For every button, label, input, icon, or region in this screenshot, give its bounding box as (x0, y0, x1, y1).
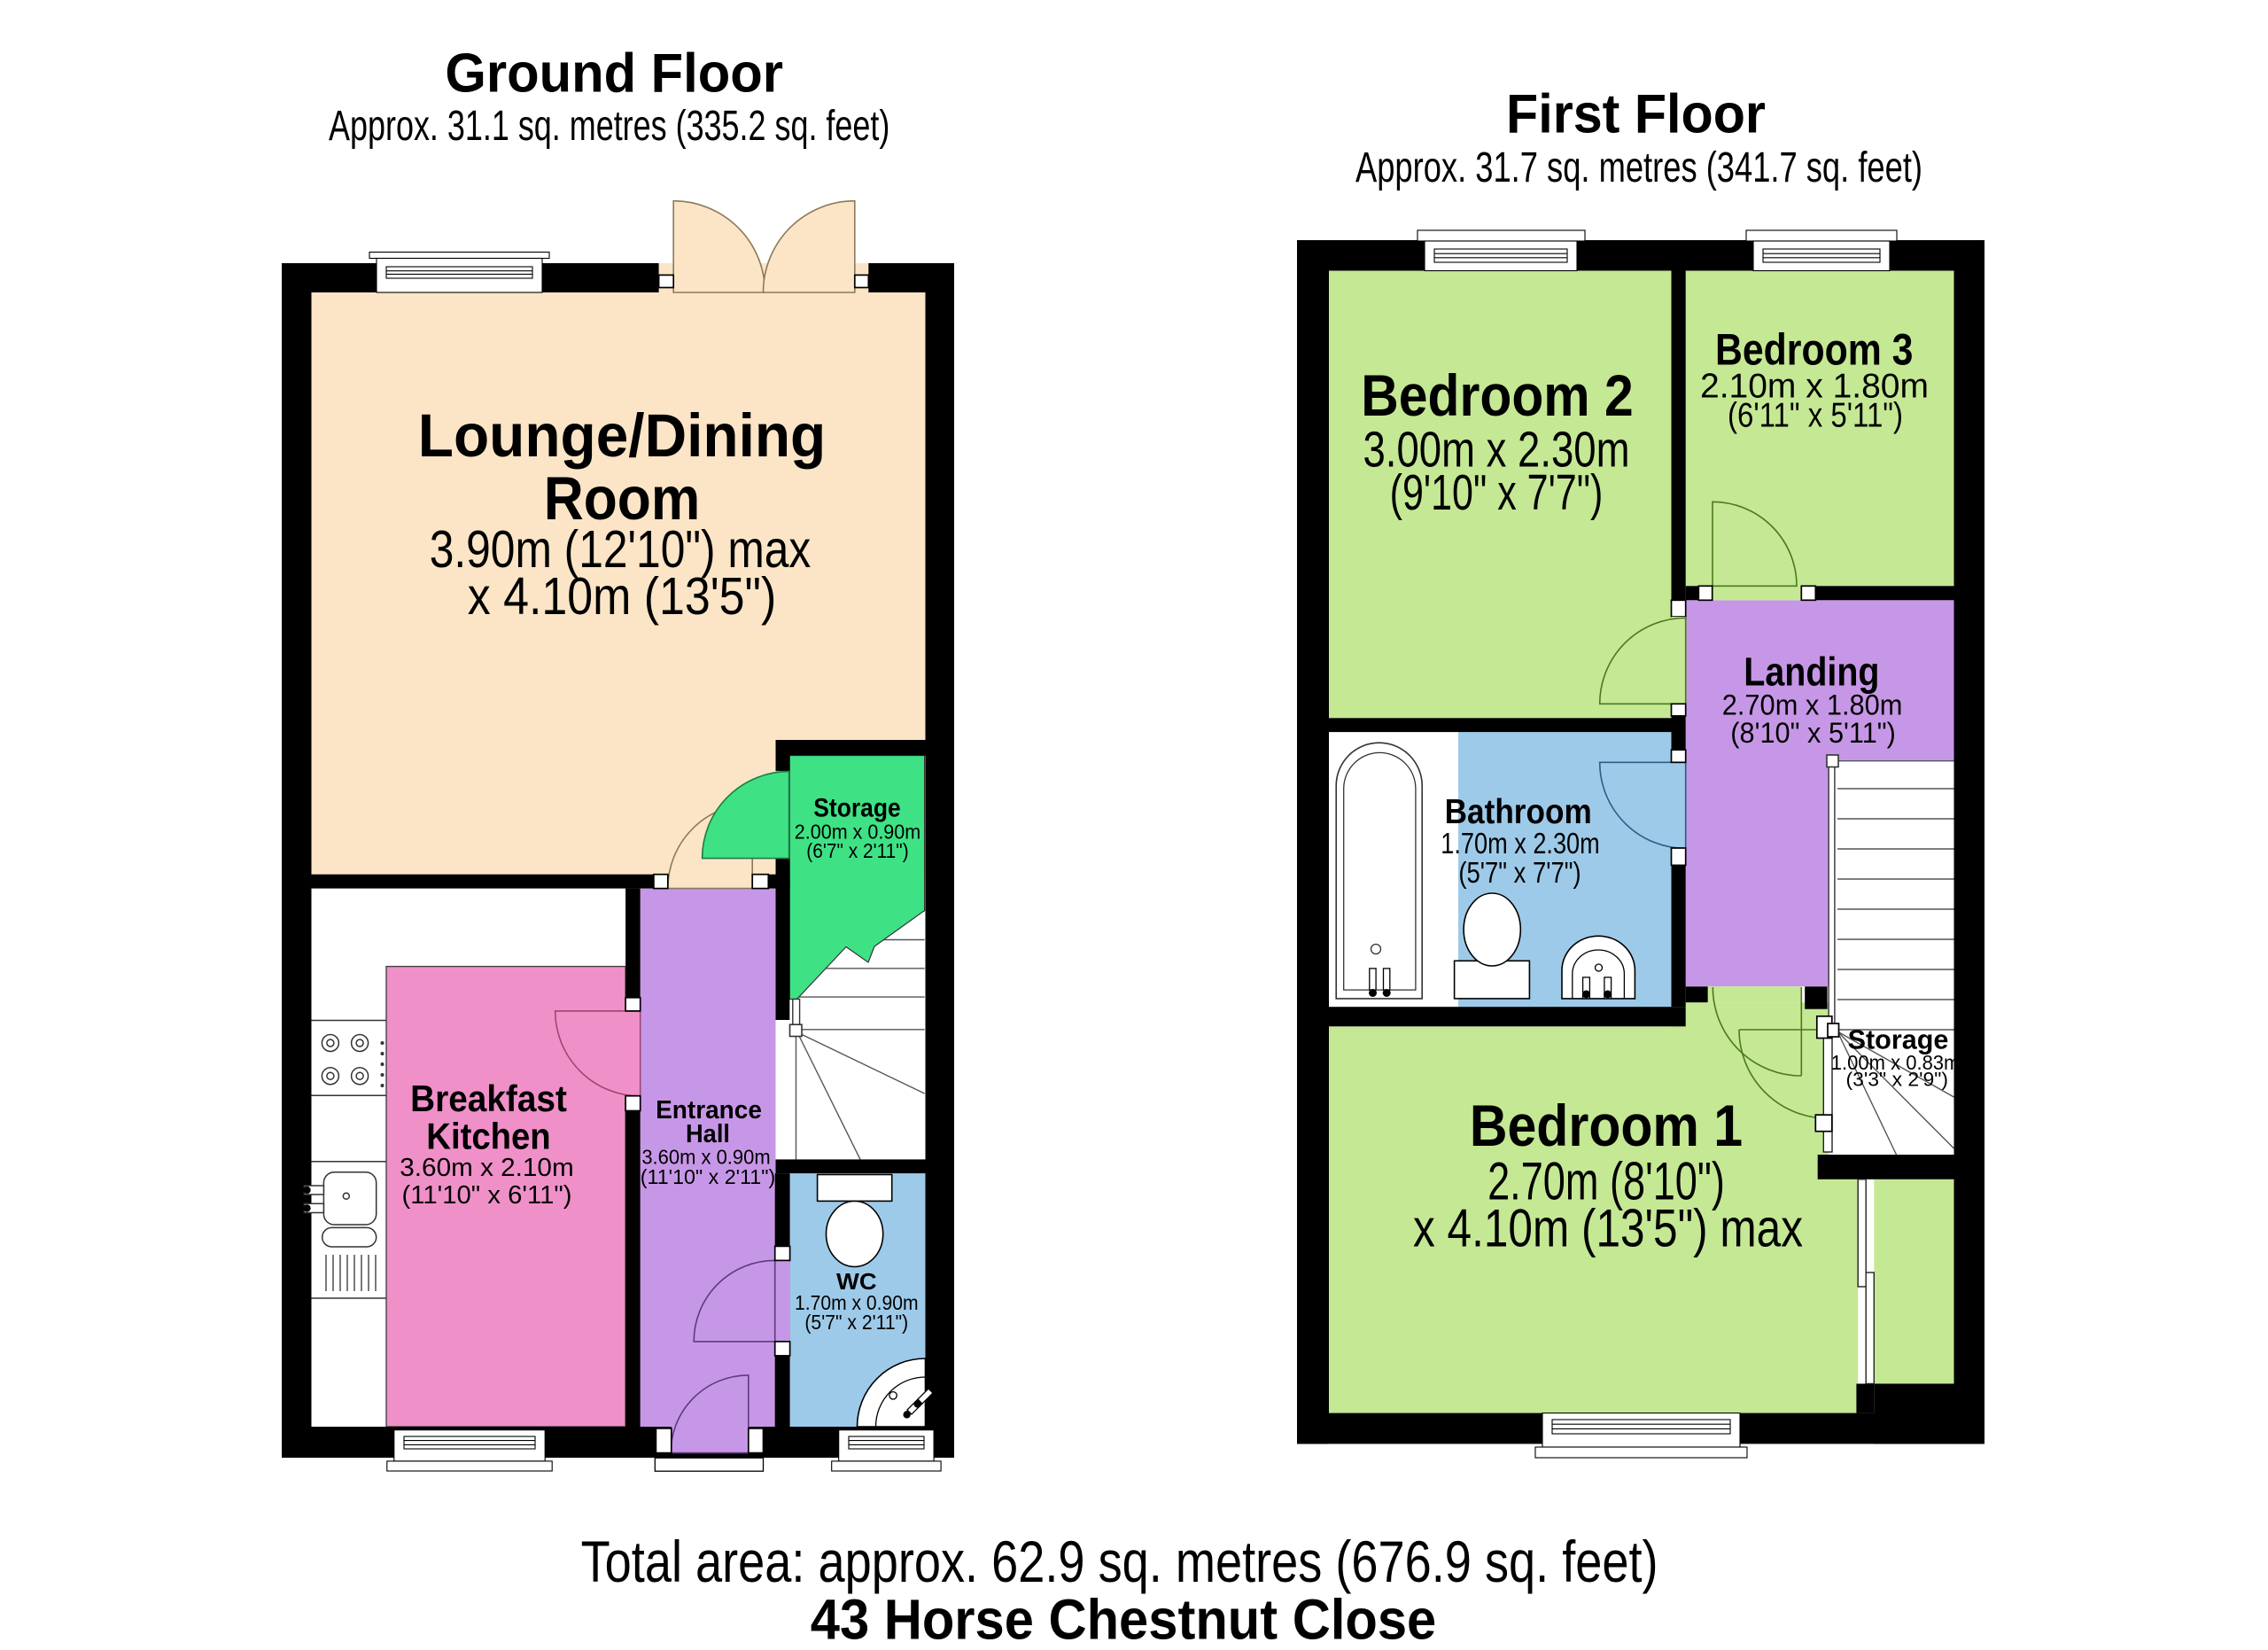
svg-text:1.70m x 2.30m: 1.70m x 2.30m (1441, 827, 1600, 860)
svg-text:(9'10" x 7'7"): (9'10" x 7'7") (1390, 464, 1604, 521)
svg-text:Kitchen: Kitchen (426, 1115, 550, 1156)
svg-text:Breakfast: Breakfast (410, 1078, 567, 1119)
svg-text:Bedroom 2: Bedroom 2 (1361, 362, 1633, 428)
svg-text:Approx. 31.7 sq. metres (341.7: Approx. 31.7 sq. metres (341.7 sq. feet) (1355, 144, 1922, 191)
svg-text:Lounge/Dining: Lounge/Dining (418, 401, 827, 470)
svg-text:x 4.10m (13'5") max: x 4.10m (13'5") max (1413, 1199, 1803, 1258)
svg-text:43 Horse Chestnut Close: 43 Horse Chestnut Close (811, 1588, 1437, 1650)
svg-text:Total area: approx. 62.9 sq. m: Total area: approx. 62.9 sq. metres (676… (581, 1529, 1658, 1594)
svg-text:(5'7" x 7'7"): (5'7" x 7'7") (1458, 856, 1581, 889)
svg-text:(11'10" x 6'11"): (11'10" x 6'11") (402, 1181, 572, 1210)
svg-text:Bedroom 1: Bedroom 1 (1470, 1093, 1743, 1158)
svg-text:(11'10" x 2'11"): (11'10" x 2'11") (641, 1165, 775, 1188)
svg-text:Ground Floor: Ground Floor (445, 43, 783, 105)
svg-text:(6'7" x 2'11"): (6'7" x 2'11") (806, 839, 908, 862)
svg-text:First Floor: First Floor (1506, 84, 1766, 145)
svg-text:(3'3" x 2'9"): (3'3" x 2'9") (1846, 1069, 1949, 1091)
svg-text:Storage: Storage (813, 794, 900, 823)
svg-text:3.60m x 2.10m: 3.60m x 2.10m (400, 1154, 573, 1182)
svg-text:Landing: Landing (1744, 650, 1879, 695)
svg-text:Approx. 31.1 sq. metres (335.2: Approx. 31.1 sq. metres (335.2 sq. feet) (329, 103, 889, 150)
svg-text:(6'11" x 5'11"): (6'11" x 5'11") (1728, 396, 1903, 434)
svg-text:(8'10" x 5'11"): (8'10" x 5'11") (1730, 717, 1896, 749)
svg-text:(5'7" x 2'11"): (5'7" x 2'11") (804, 1311, 908, 1334)
svg-text:Bathroom: Bathroom (1445, 793, 1592, 831)
svg-text:x 4.10m (13'5"): x 4.10m (13'5") (468, 567, 777, 626)
svg-text:Hall: Hall (686, 1120, 730, 1148)
